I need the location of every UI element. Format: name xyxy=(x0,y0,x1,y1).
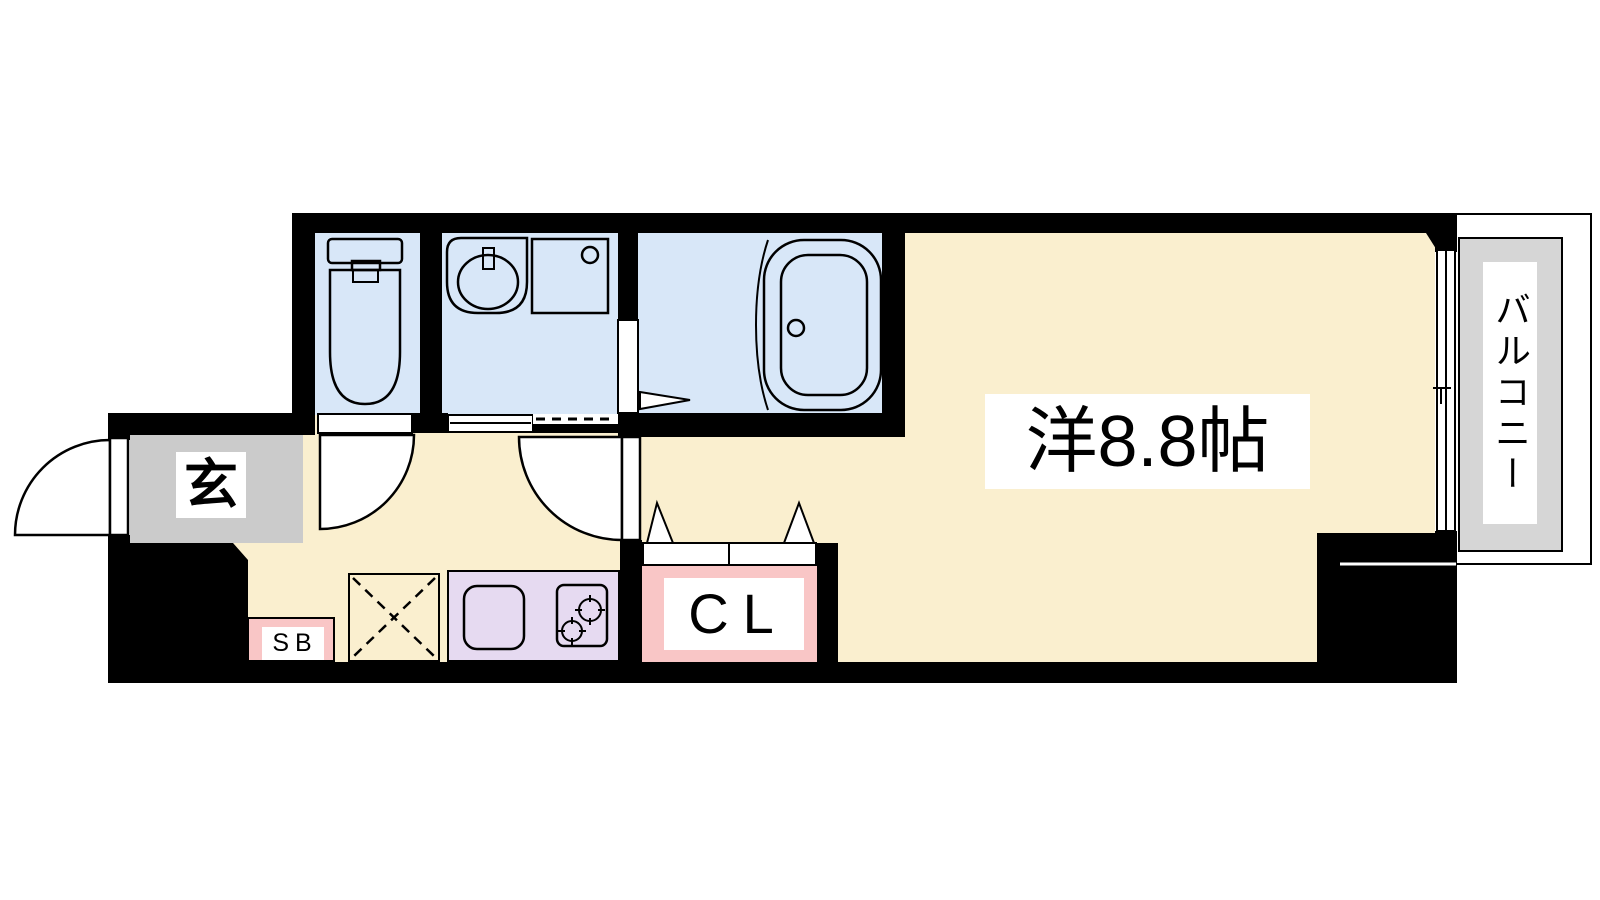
washbasin-icon xyxy=(447,238,527,313)
shoe-box-label: SB xyxy=(262,627,324,660)
entrance-block-chamfer xyxy=(233,543,248,560)
entrance-door-swing-icon xyxy=(15,438,128,535)
refrigerator-space-icon xyxy=(353,578,435,657)
washing-machine-pan-icon xyxy=(532,239,608,313)
sliding-window-icon xyxy=(1433,250,1455,531)
fixtures-overlay xyxy=(0,0,1600,900)
toilet-door-swing-icon xyxy=(318,414,414,529)
toilet-icon xyxy=(328,239,402,404)
washroom-sliding-door-icon xyxy=(448,414,618,433)
main-room-label: 洋8.8帖 xyxy=(985,394,1310,489)
stove-icon xyxy=(557,585,607,646)
main-room-door-swing-icon xyxy=(519,437,640,540)
kitchen-sink-icon xyxy=(464,586,524,649)
bathtub-icon xyxy=(756,240,881,410)
closet-label: CL xyxy=(664,578,804,650)
entrance-label: 玄 xyxy=(176,452,246,518)
closet-double-door-icon xyxy=(643,503,816,565)
floor-plan-canvas: 玄 SB CL 洋8.8帖 バルコニー xyxy=(0,0,1600,900)
balcony-label: バルコニー xyxy=(1483,262,1537,524)
bathroom-door-icon xyxy=(618,320,690,413)
